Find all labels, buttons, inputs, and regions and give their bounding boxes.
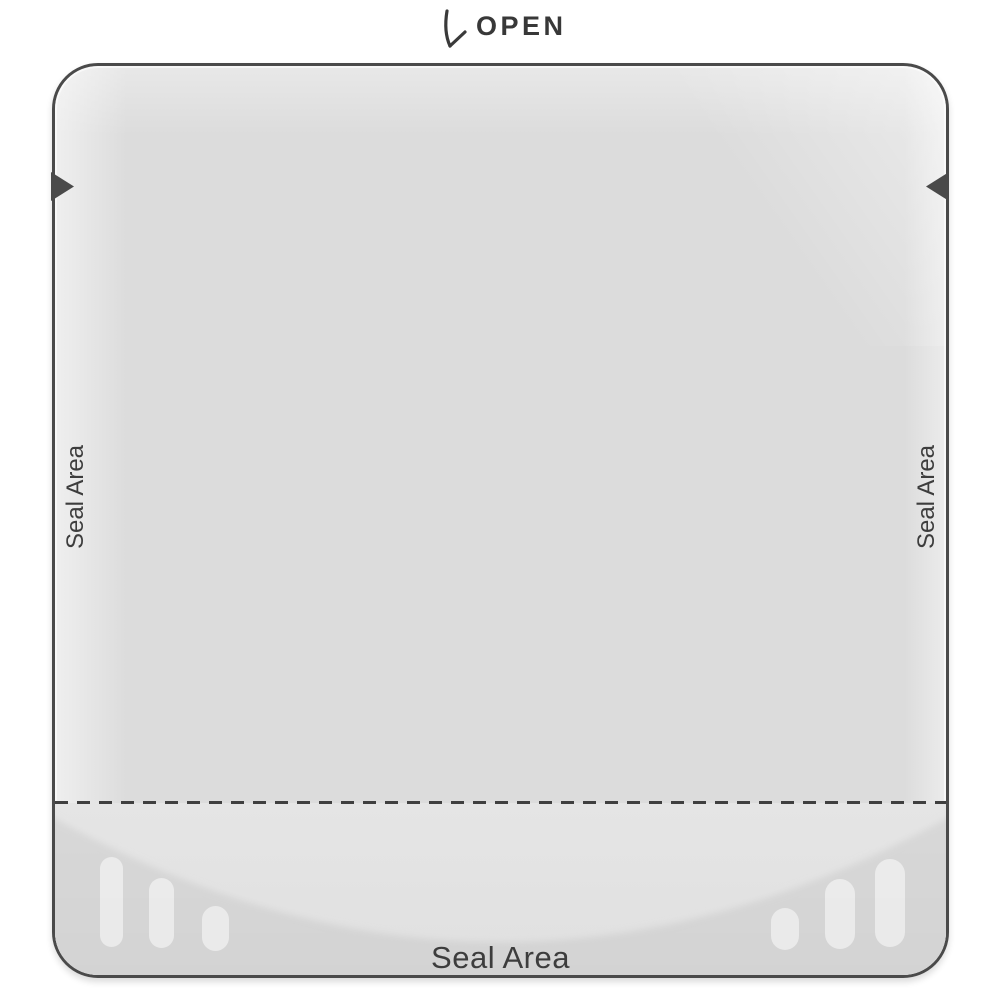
emboss-pill-right-3 bbox=[875, 859, 905, 947]
emboss-pill-right-2 bbox=[825, 879, 855, 949]
seal-area-label-bottom: Seal Area bbox=[431, 942, 570, 973]
open-arrow-icon bbox=[440, 8, 470, 52]
top-edge-highlight bbox=[55, 66, 946, 136]
emboss-pill-left-1 bbox=[100, 857, 123, 947]
emboss-pill-right-1 bbox=[771, 908, 799, 950]
top-right-sheen bbox=[626, 66, 946, 346]
open-header: OPEN bbox=[440, 8, 567, 52]
pouch-outline: Seal Area Seal Area Seal Area bbox=[52, 63, 949, 978]
open-label: OPEN bbox=[476, 13, 567, 40]
emboss-pill-left-2 bbox=[149, 878, 174, 948]
seal-area-label-right: Seal Area bbox=[915, 445, 939, 549]
emboss-pill-left-3 bbox=[202, 906, 229, 951]
perforation-dashed-line bbox=[55, 801, 946, 804]
seal-area-label-left: Seal Area bbox=[64, 445, 88, 549]
